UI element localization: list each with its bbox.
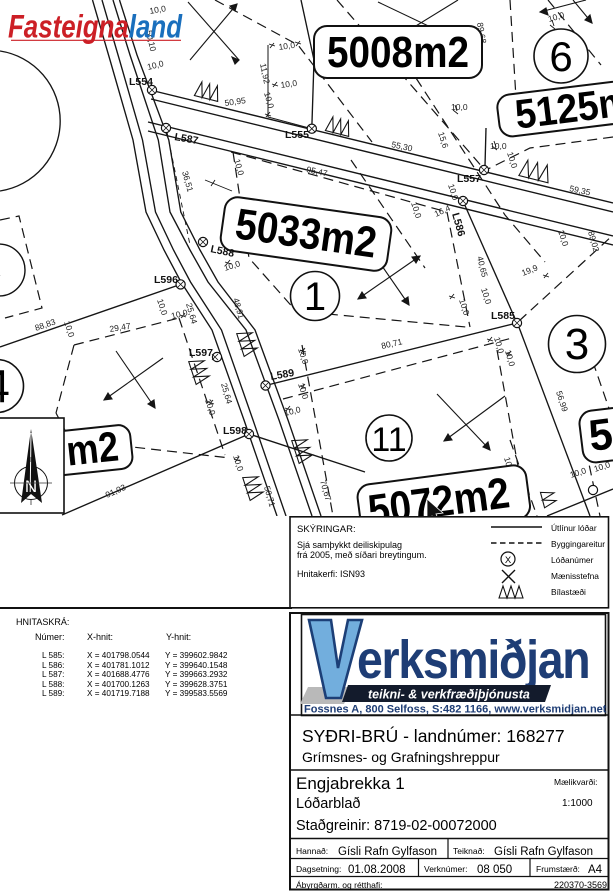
svg-text:Ábyrgðarm. og rétthafi:: Ábyrgðarm. og rétthafi: [296, 880, 382, 890]
svg-text:1: 1 [304, 275, 326, 319]
svg-text:91,03: 91,03 [104, 482, 128, 500]
svg-text:55,30: 55,30 [391, 139, 414, 153]
svg-text:Dagsetning:: Dagsetning: [296, 864, 341, 874]
svg-text:10,0: 10,0 [409, 201, 424, 220]
svg-text:Bílastæði: Bílastæði [551, 587, 586, 597]
svg-text:11,92: 11,92 [258, 62, 272, 85]
svg-text:10,0: 10,0 [479, 287, 494, 306]
svg-text:Engjabrekka 1: Engjabrekka 1 [296, 774, 405, 793]
svg-text:Staðgreinir: 8719-02-00072000: Staðgreinir: 8719-02-00072000 [296, 818, 497, 834]
svg-text:59,35: 59,35 [569, 183, 592, 197]
svg-text:10,0: 10,0 [505, 151, 520, 170]
svg-text:teikni- & verkfræðiþjónusta: teikni- & verkfræðiþjónusta [368, 688, 530, 702]
svg-text:SYÐRI-BRÚ - landnúmer: 168277: SYÐRI-BRÚ - landnúmer: 168277 [302, 725, 565, 746]
svg-text:SKÝRINGAR:: SKÝRINGAR: [297, 524, 356, 535]
svg-text:10,0: 10,0 [547, 10, 566, 24]
svg-text:Lóðarblað: Lóðarblað [296, 796, 361, 812]
svg-text:X: X [505, 555, 512, 566]
svg-text:08 050: 08 050 [477, 864, 512, 876]
svg-text:L597: L597 [189, 347, 213, 359]
svg-text:frá 2005, með síðari breytingu: frá 2005, með síðari breytingum. [297, 550, 427, 560]
svg-text:1:1000: 1:1000 [562, 798, 593, 809]
svg-text:L585: L585 [491, 310, 515, 322]
svg-text:10,0: 10,0 [146, 58, 165, 72]
svg-text:Gísli Rafn Gylfason: Gísli Rafn Gylfason [338, 846, 437, 858]
svg-text:10,0: 10,0 [232, 158, 246, 177]
svg-text:3: 3 [565, 320, 589, 369]
svg-text:10,0: 10,0 [283, 404, 302, 418]
svg-text:95,47: 95,47 [306, 164, 329, 178]
svg-text:29,47: 29,47 [109, 321, 132, 334]
svg-text:Frumstærð:: Frumstærð: [536, 864, 580, 874]
svg-text:10,0: 10,0 [457, 298, 472, 317]
svg-text:50,71: 50,71 [262, 485, 278, 508]
svg-text:10,0: 10,0 [223, 258, 242, 273]
svg-text:19,9: 19,9 [520, 262, 539, 278]
svg-text:36,51: 36,51 [180, 170, 196, 193]
svg-text:L596: L596 [154, 274, 178, 286]
svg-text:10,0: 10,0 [155, 298, 170, 317]
svg-text:40,65: 40,65 [475, 255, 490, 278]
svg-text:5008m2: 5008m2 [327, 29, 469, 77]
svg-text:Fasteignaland: Fasteignaland [8, 9, 183, 45]
svg-text:70,67: 70,67 [318, 479, 334, 502]
svg-text:11: 11 [371, 421, 406, 459]
svg-text:10,0: 10,0 [451, 102, 468, 112]
svg-text:6: 6 [549, 33, 572, 80]
svg-text:10,0: 10,0 [278, 40, 296, 52]
svg-text:88,83: 88,83 [33, 316, 57, 332]
svg-text:50: 50 [586, 407, 613, 461]
svg-text:Útlínur lóðar: Útlínur lóðar [551, 523, 597, 533]
svg-text:50,95: 50,95 [224, 95, 247, 108]
svg-text:Byggingareitur: Byggingareitur [551, 539, 605, 549]
svg-text:Gísli Rafn Gylfason: Gísli Rafn Gylfason [494, 846, 593, 858]
svg-text:5033m2: 5033m2 [232, 200, 379, 267]
svg-text:10,0: 10,0 [203, 398, 218, 417]
svg-text:N: N [25, 477, 37, 496]
svg-text:Lóðanúmer: Lóðanúmer [551, 555, 594, 565]
svg-text:A4: A4 [588, 864, 603, 876]
svg-text:Verknúmer:: Verknúmer: [424, 864, 467, 874]
svg-text:Mælikvarði:: Mælikvarði: [554, 777, 597, 787]
svg-text:10,0: 10,0 [280, 78, 298, 90]
svg-text:L554: L554 [129, 76, 153, 88]
svg-text:Grímsnes- og Grafningshreppur: Grímsnes- og Grafningshreppur [302, 749, 500, 765]
svg-text:L557: L557 [457, 173, 481, 185]
svg-text:Fossnes A, 800 Selfoss, S:482: Fossnes A, 800 Selfoss, S:482 1166, www.… [304, 704, 607, 716]
svg-text:10,0: 10,0 [503, 349, 517, 368]
svg-text:10,0: 10,0 [231, 454, 246, 473]
svg-text:erksmiðjan: erksmiðjan [357, 629, 589, 690]
svg-text:10,0: 10,0 [296, 347, 311, 366]
svg-text:L589: L589 [269, 367, 295, 383]
svg-text:80,71: 80,71 [380, 336, 403, 351]
svg-text:48,91: 48,91 [231, 297, 247, 320]
svg-text:10,0: 10,0 [556, 229, 571, 248]
svg-text:Teiknað:: Teiknað: [453, 846, 485, 856]
svg-text:10,0: 10,0 [490, 141, 507, 151]
svg-text:10,0: 10,0 [62, 320, 77, 339]
svg-text:10,0: 10,0 [262, 91, 276, 110]
svg-text:5125m2: 5125m2 [513, 75, 613, 137]
svg-text:Sjá samþykkt deiliskipulag: Sjá samþykkt deiliskipulag [297, 540, 402, 550]
svg-text:4: 4 [0, 360, 10, 412]
svg-text:Hnitakerfi: ISN93: Hnitakerfi: ISN93 [297, 569, 365, 579]
svg-text:m2: m2 [64, 422, 121, 474]
svg-text:Hannað:: Hannað: [296, 846, 328, 856]
svg-text:220370-3569: 220370-3569 [554, 880, 607, 890]
svg-text:01.08.2008: 01.08.2008 [348, 864, 406, 876]
svg-text:Mænisstefna: Mænisstefna [551, 571, 599, 581]
svg-text:10,0: 10,0 [170, 307, 189, 321]
svg-text:15,6: 15,6 [436, 131, 451, 150]
svg-text:L555: L555 [285, 129, 309, 141]
svg-text:56,99: 56,99 [554, 390, 570, 414]
svg-text:L598: L598 [223, 425, 247, 437]
